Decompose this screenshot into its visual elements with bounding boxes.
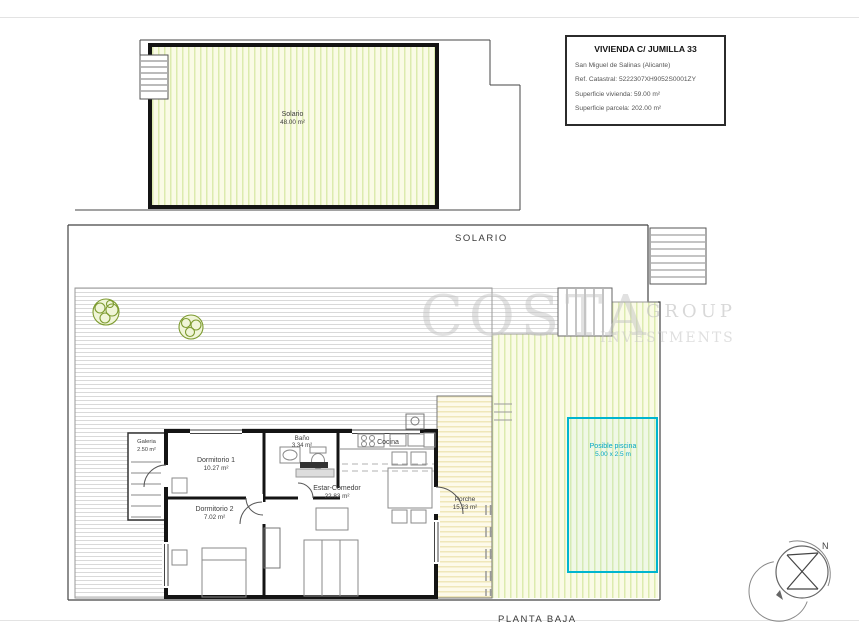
- room-label-galeria: Galeria 2.50 m²: [128, 439, 165, 454]
- pool-label: Posible piscina 5.00 x 2.5 m: [570, 442, 656, 460]
- plan-linework: N: [0, 0, 859, 638]
- porch-pillar-marks: [486, 505, 491, 596]
- title-block: VIVIENDA C/ JUMILLA 33 San Miguel de Sal…: [565, 35, 726, 126]
- tree-icon: [179, 315, 203, 339]
- room-label-dormitorio1: Dormitorio 1 10.27 m²: [168, 456, 264, 473]
- project-location: San Miguel de Salinas (Alicante): [575, 62, 724, 69]
- solario-roof-label: Solario 48.00 m²: [250, 110, 335, 127]
- room-label-dormitorio2: Dormitorio 2 7.02 m²: [172, 505, 257, 522]
- superficie-parcela: Superficie parcela: 202.00 m²: [575, 105, 724, 112]
- garden-steps-icon: [558, 288, 612, 336]
- compass-north-label: N: [822, 541, 829, 551]
- ref-catastral: Ref. Catastral: 5222307XH9052S0001ZY: [575, 76, 724, 83]
- floor-plan-page: N Solario 48.00 m² SOLARIO Dormitorio 1 …: [0, 0, 859, 638]
- compass-rose-icon: N: [749, 541, 830, 621]
- room-label-cocina: Cocina: [358, 438, 418, 447]
- stairs-icon: [140, 55, 168, 99]
- project-title: VIVIENDA C/ JUMILLA 33: [567, 44, 724, 54]
- superficie-vivienda: Superficie vivienda: 59.00 m²: [575, 91, 724, 98]
- room-label-estar-comedor: Estar-Comedor 22.83 m²: [292, 484, 382, 501]
- exterior-stairs-icon: [650, 228, 706, 284]
- planta-baja-label: PLANTA BAJA: [498, 614, 577, 625]
- room-label-bano: Baño 3.34 m²: [278, 435, 326, 451]
- tree-icon: [93, 299, 119, 325]
- room-label-porche: Porche 15.23 m²: [440, 496, 490, 513]
- solario-section-label: SOLARIO: [455, 233, 508, 244]
